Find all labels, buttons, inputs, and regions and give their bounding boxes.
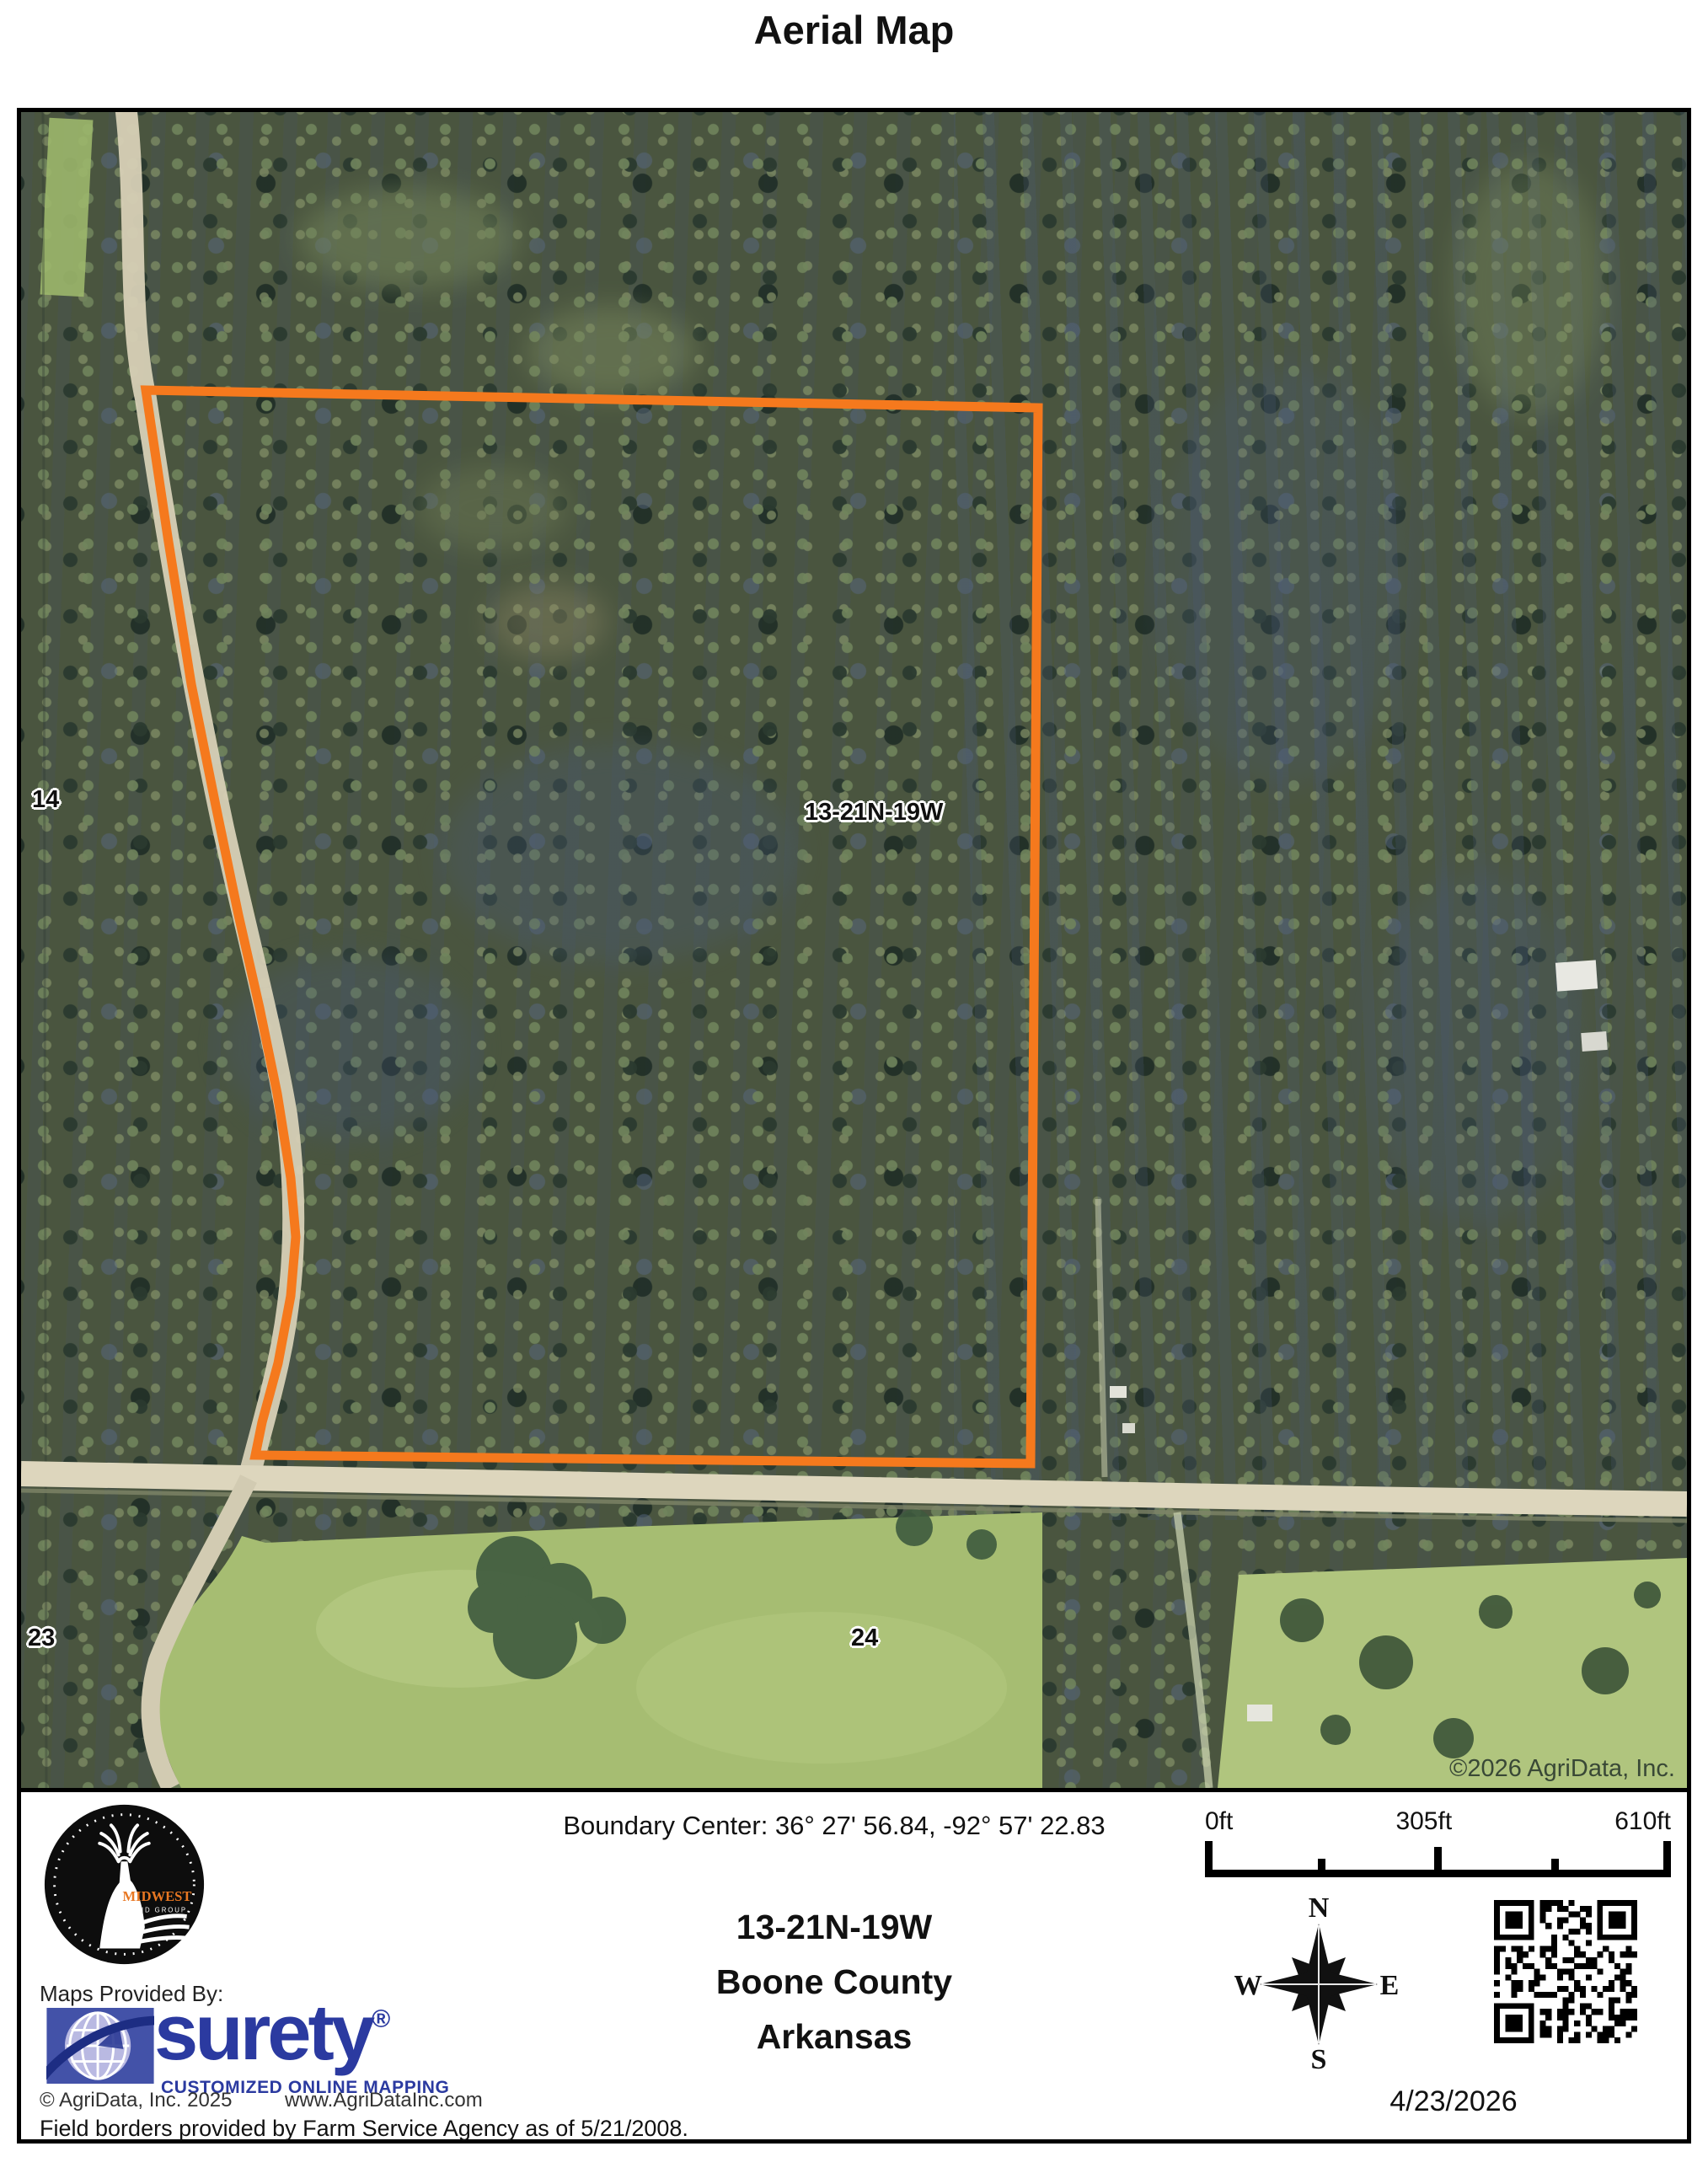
- county-road-south: [21, 1474, 1687, 1504]
- map-date: 4/23/2026: [1352, 2085, 1555, 2118]
- midwest-logo-text: MIDWEST: [123, 1888, 192, 1904]
- aerial-map-image: 14 13-21N-19W 23 24 ©2026 AgriData, Inc.: [17, 108, 1691, 1792]
- qr-code: [1494, 1900, 1637, 2043]
- parcel-label: 13-21N-19W: [805, 799, 943, 827]
- field-borders-note: Field borders provided by Farm Service A…: [40, 2116, 688, 2142]
- location-block: 13-21N-19W Boone County Arkansas: [375, 1900, 1293, 2064]
- section-number-label: 14: [32, 786, 59, 814]
- state-name: Arkansas: [375, 2010, 1293, 2064]
- compass-east-label: E: [1380, 1970, 1400, 2001]
- trail: [1098, 1199, 1105, 1477]
- agridata-website: www.AgriDataInc.com: [285, 2089, 483, 2112]
- midwest-logo-subtext: LAND GROUP: [127, 1907, 187, 1914]
- section-number-label: 24: [851, 1624, 878, 1652]
- footer: MIDWEST LAND GROUP Maps Provided By: sur…: [17, 1792, 1691, 2144]
- map-copyright-watermark: ©2026 AgriData, Inc.: [1449, 1755, 1675, 1783]
- section-line: [43, 112, 46, 1788]
- surety-brand-text: surety: [154, 1988, 372, 2076]
- surety-globe-icon: [46, 2008, 154, 2084]
- parcel-id: 13-21N-19W: [375, 1900, 1293, 1955]
- scale-bar: 0ft 305ft 610ft: [1205, 1807, 1671, 1877]
- driveway: [1177, 1512, 1209, 1788]
- page-title: Aerial Map: [0, 7, 1708, 53]
- boundary-center-coordinates: Boundary Center: 36° 27' 56.84, -92° 57'…: [375, 1811, 1293, 1841]
- compass-rose-icon: N S W E: [1234, 1890, 1403, 2071]
- scale-start-label: 0ft: [1205, 1807, 1233, 1836]
- midwest-land-group-logo: MIDWEST LAND GROUP: [42, 1802, 206, 1967]
- map-vector-overlay: [21, 112, 1687, 1788]
- compass-west-label: W: [1234, 1970, 1262, 2001]
- scale-bar-ruler: [1205, 1841, 1671, 1877]
- compass-north-label: N: [1309, 1892, 1330, 1924]
- surety-wordmark: surety®: [154, 1993, 390, 2072]
- field-patch: [40, 118, 94, 297]
- county-name: Boone County: [375, 1955, 1293, 2010]
- page: Aerial Map: [0, 0, 1708, 2157]
- agridata-copyright: © AgriData, Inc. 2025: [40, 2089, 232, 2112]
- scale-end-label: 610ft: [1614, 1807, 1671, 1836]
- compass-south-label: S: [1311, 2044, 1327, 2071]
- scale-middle-label: 305ft: [1395, 1807, 1452, 1836]
- section-number-label: 23: [28, 1624, 55, 1652]
